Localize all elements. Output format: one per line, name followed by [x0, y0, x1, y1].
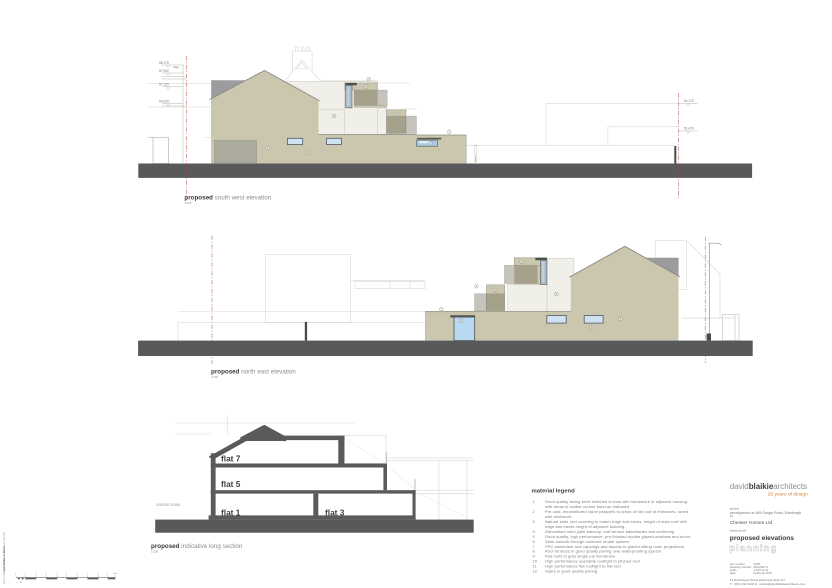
svg-text:GORGIE ROAD: GORGIE ROAD: [156, 503, 181, 507]
svg-text:1/100: 1/100: [151, 549, 158, 553]
svg-text:flat 5: flat 5: [221, 479, 241, 489]
svg-text:planning: planning: [729, 542, 777, 553]
svg-text:development at 469 Gorgie Road: development at 469 Gorgie Road, Edinburg…: [730, 511, 801, 515]
svg-text:25 years of design: 25 years of design: [768, 491, 808, 497]
svg-text:1/100: 1/100: [184, 201, 191, 205]
svg-text:Stairs in good quality paving: Stairs in good quality paving: [545, 569, 597, 574]
svg-text:2: 2: [533, 509, 535, 514]
svg-text:57.125: 57.125: [159, 83, 169, 87]
svg-text:54.920: 54.920: [159, 100, 169, 104]
svg-text:flat 7: flat 7: [221, 454, 241, 464]
svg-text:54.170: 54.170: [684, 99, 694, 103]
svg-text:flat 3: flat 3: [325, 507, 345, 517]
svg-text:1/100: 1/100: [211, 375, 218, 379]
svg-text:davidblaikiearchitects: davidblaikiearchitects: [730, 482, 807, 491]
svg-text:T : 0131 332 1128 E : studio@: T : 0131 332 1128 E : studio@davidblaiki…: [730, 582, 806, 586]
svg-text:57.950: 57.950: [159, 69, 169, 73]
svg-text:issue P1 © david blaikie arch: issue P1 © david blaikie architects do n…: [3, 531, 6, 584]
svg-text:date: date: [730, 571, 736, 575]
svg-text:3: 3: [533, 519, 535, 524]
svg-text:proposed north east elevation: proposed north east elevation: [211, 369, 296, 376]
svg-text:51.470: 51.470: [684, 127, 694, 131]
svg-text:for: for: [730, 514, 734, 518]
svg-text:ridge: ridge: [173, 65, 179, 69]
svg-text:proposed elevations: proposed elevations: [730, 535, 794, 542]
svg-text:12: 12: [533, 569, 538, 574]
svg-text:flat 1: flat 1: [221, 507, 241, 517]
svg-text:drawing title: drawing title: [730, 529, 747, 533]
svg-text:proposed south west elevation: proposed south west elevation: [184, 195, 271, 202]
svg-text:material legend: material legend: [532, 489, 576, 495]
svg-text:10m: 10m: [113, 573, 117, 575]
svg-text:58.175: 58.175: [159, 61, 169, 65]
svg-text:1 : 100: 1 : 100: [16, 582, 23, 584]
svg-text:February R20: February R20: [753, 571, 772, 575]
svg-text:proposed indicative long secti: proposed indicative long section: [151, 543, 243, 550]
svg-text:Chesser Homes Ltd: Chesser Homes Ltd: [730, 520, 773, 526]
svg-text:1: 1: [533, 499, 535, 504]
